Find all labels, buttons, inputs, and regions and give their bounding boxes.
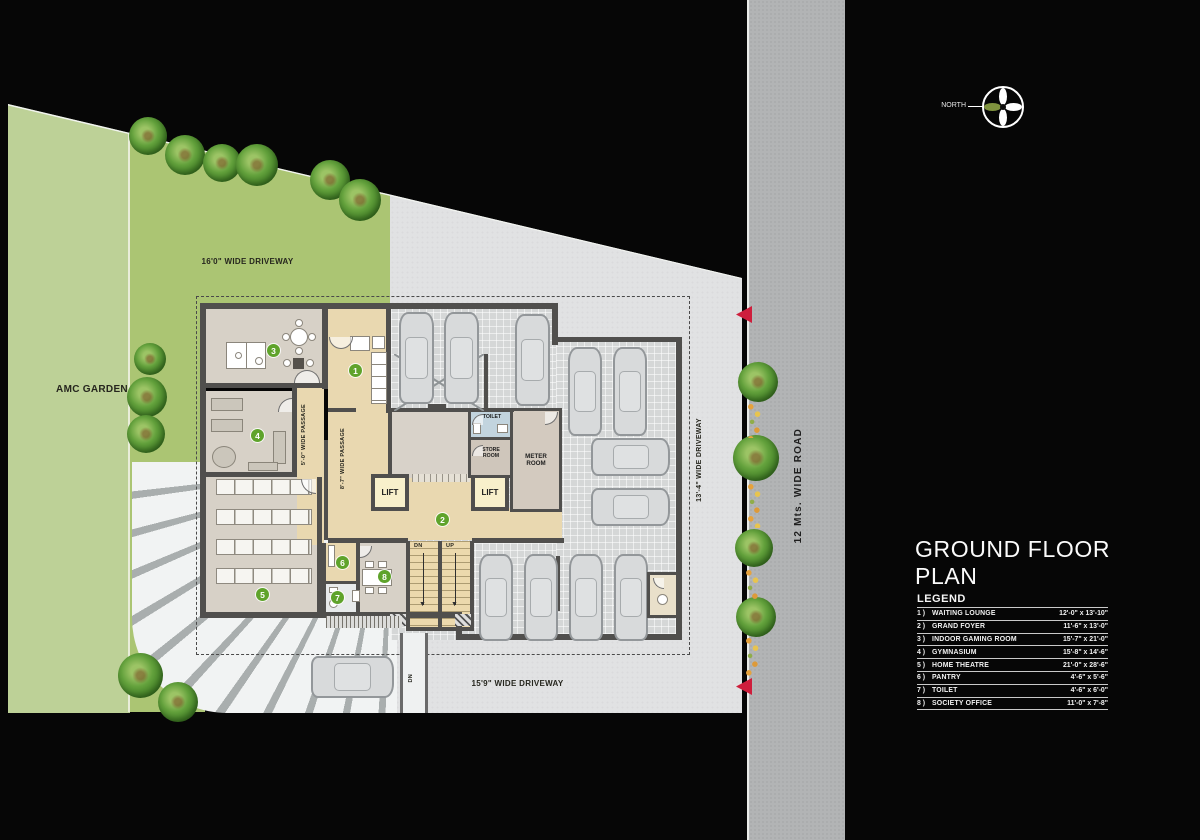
office-desk bbox=[352, 590, 360, 602]
legend-num: 3 ) bbox=[917, 636, 932, 643]
chair bbox=[378, 561, 387, 568]
legend-name: GRAND FOYER bbox=[932, 623, 1063, 630]
car-icon bbox=[515, 314, 550, 406]
road-label: 12 Mts. WIDE ROAD bbox=[793, 428, 804, 543]
wall-gaming-bottom bbox=[200, 383, 328, 388]
weights-row bbox=[248, 462, 278, 471]
billiard-table bbox=[226, 342, 266, 369]
car-icon bbox=[614, 554, 648, 641]
tree-icon bbox=[339, 179, 381, 221]
meter-room-label: METER ROOM bbox=[518, 453, 554, 467]
square-table bbox=[291, 356, 306, 371]
theatre-seat-row bbox=[216, 539, 312, 555]
stair-arrow-left bbox=[423, 553, 424, 605]
car-icon bbox=[569, 554, 603, 641]
wc-icon bbox=[657, 594, 668, 605]
north-label: NORTH bbox=[938, 102, 966, 109]
chair bbox=[283, 359, 291, 367]
wall-xbay-right bbox=[484, 354, 488, 412]
legend-row: 7 ) TOILET 4'-6" x 6'-0" bbox=[917, 685, 1108, 698]
legend-row: 2 ) GRAND FOYER 11'-6" x 13'-0" bbox=[917, 621, 1108, 634]
stair-arrow-left-head: ▼ bbox=[419, 601, 426, 608]
legend-dim: 15'-8" x 14'-6" bbox=[1063, 649, 1108, 656]
compass-petal-n bbox=[999, 88, 1007, 105]
stair-arrow-right-head: ▼ bbox=[451, 601, 458, 608]
exercise-bike bbox=[211, 419, 243, 432]
dumbbell-rack bbox=[273, 431, 286, 464]
badge-8: 8 bbox=[378, 570, 391, 583]
legend-table: 1 ) WAITING LOUNGE 12'-0" x 13'-10" 2 ) … bbox=[917, 607, 1108, 710]
stairs-up-label: UP bbox=[446, 543, 454, 549]
legend-dim: 12'-0" x 13'-10" bbox=[1059, 610, 1108, 617]
car-icon bbox=[613, 347, 647, 436]
parking-toilet bbox=[647, 572, 679, 618]
theatre-seat-row bbox=[216, 479, 312, 495]
legend-num: 1 ) bbox=[917, 610, 932, 617]
toilet-wc bbox=[497, 424, 508, 433]
wall-stairs-left bbox=[406, 541, 410, 631]
legend-num: 2 ) bbox=[917, 623, 932, 630]
wall-gaming-lounge bbox=[322, 303, 328, 389]
car-icon bbox=[568, 347, 602, 436]
chair bbox=[378, 587, 387, 594]
pantry-counter bbox=[328, 545, 335, 567]
chair bbox=[308, 333, 316, 341]
tree-icon bbox=[236, 144, 278, 186]
flowers-icon bbox=[744, 636, 760, 676]
compass-petal-e bbox=[1005, 103, 1022, 111]
car-icon bbox=[399, 312, 434, 404]
passage8-label: 8'-7" WIDE PASSAGE bbox=[340, 428, 346, 489]
badge-4: 4 bbox=[251, 429, 264, 442]
side-table bbox=[372, 336, 385, 349]
flowers-icon bbox=[746, 482, 762, 528]
wall-lounge-bottom bbox=[328, 408, 356, 412]
round-table bbox=[290, 328, 308, 346]
theatre-seat-row bbox=[216, 568, 312, 584]
flowers-icon bbox=[744, 568, 760, 600]
tree-icon bbox=[738, 362, 778, 402]
spin-bike bbox=[212, 446, 236, 468]
badge-3: 3 bbox=[267, 344, 280, 357]
meter-room: METER ROOM bbox=[510, 408, 562, 512]
legend-title: LEGEND bbox=[917, 593, 966, 605]
compass-petal-s bbox=[999, 109, 1007, 126]
floor-plan-sheet: 12 Mts. WIDE ROAD DN UP bbox=[0, 0, 1200, 840]
legend-dim: 11'-6" x 13'-0" bbox=[1063, 623, 1108, 630]
wall-theatre-top bbox=[200, 472, 297, 477]
amc-garden-area bbox=[8, 104, 130, 713]
lift-2-label: LIFT bbox=[482, 488, 499, 497]
wall-gym-right bbox=[292, 383, 297, 477]
pier-hatched-2 bbox=[455, 614, 471, 626]
flowers-icon bbox=[746, 402, 762, 438]
badge-6: 6 bbox=[336, 556, 349, 569]
car-icon bbox=[591, 488, 670, 526]
lift-1: LIFT bbox=[371, 474, 409, 511]
wall-vestibule-left bbox=[388, 408, 392, 478]
legend-dim: 21'-0" x 28'-6" bbox=[1063, 662, 1108, 669]
driveway-top-label: 16'0" WIDE DRIVEWAY bbox=[185, 257, 310, 266]
legend-num: 7 ) bbox=[917, 687, 932, 694]
tree-icon bbox=[158, 682, 198, 722]
wall-passage-foyer bbox=[324, 440, 328, 540]
compass-center bbox=[1000, 104, 1006, 110]
car-icon bbox=[591, 438, 670, 476]
legend-row: 5 ) HOME THEATRE 21'-0" x 28'-6" bbox=[917, 659, 1108, 672]
badge-2: 2 bbox=[436, 513, 449, 526]
wall-top-b bbox=[552, 337, 682, 342]
chair bbox=[295, 319, 303, 327]
sheet-title-line2: PLAN bbox=[915, 563, 1135, 590]
tree-icon bbox=[129, 117, 167, 155]
tree-icon bbox=[733, 435, 779, 481]
armchair bbox=[350, 336, 370, 351]
legend-name: TOILET bbox=[932, 687, 1071, 694]
compass-petal-w bbox=[984, 103, 1001, 111]
legend-num: 6 ) bbox=[917, 674, 932, 681]
tree-icon bbox=[118, 653, 163, 698]
tree-icon bbox=[134, 343, 166, 375]
site-plot: DN UP ▼ ▼ LIFT LIFT TOILET STORE ROOM bbox=[0, 0, 747, 840]
chair bbox=[365, 587, 374, 594]
legend-num: 4 ) bbox=[917, 649, 932, 656]
legend-row: 8 ) SOCIETY OFFICE 11'-0" x 7'-8" bbox=[917, 698, 1108, 711]
driveway-bottom-label: 15'9" WIDE DRIVEWAY bbox=[450, 679, 585, 688]
lift-2: LIFT bbox=[471, 474, 509, 511]
wall-left bbox=[200, 303, 206, 618]
legend-row: 1 ) WAITING LOUNGE 12'-0" x 13'-10" bbox=[917, 608, 1108, 621]
legend-name: PANTRY bbox=[932, 674, 1071, 681]
door-arc bbox=[653, 578, 664, 589]
badge-7: 7 bbox=[331, 591, 344, 604]
chair bbox=[306, 359, 314, 367]
wall-foyer-bottom-l bbox=[328, 538, 408, 543]
driveway-right-label: 13'-4" WIDE DRIVEWAY bbox=[696, 418, 703, 502]
legend-name: WAITING LOUNGE bbox=[932, 610, 1059, 617]
entry-mat bbox=[412, 474, 470, 482]
stairs-dn-label: DN bbox=[414, 543, 423, 549]
tree-icon bbox=[127, 377, 167, 417]
tree-icon bbox=[127, 415, 165, 453]
tree-icon bbox=[165, 135, 205, 175]
toilet-store-divider bbox=[471, 437, 511, 440]
legend-dim: 4'-6" x 6'-0" bbox=[1071, 687, 1108, 694]
legend-dim: 15'-7" x 21'-0" bbox=[1063, 636, 1108, 643]
chair bbox=[295, 347, 303, 355]
wall-foyer-bottom-r bbox=[472, 538, 564, 543]
legend-row: 3 ) INDOOR GAMING ROOM 15'-7" x 21'-0" bbox=[917, 634, 1108, 647]
legend-num: 8 ) bbox=[917, 700, 932, 707]
wall-core-left bbox=[322, 543, 326, 613]
car-icon bbox=[524, 554, 558, 641]
legend-dim: 11'-0" x 7'-8" bbox=[1067, 700, 1108, 707]
sheet-title-line1: GROUND FLOOR bbox=[915, 536, 1135, 563]
legend-num: 5 ) bbox=[917, 662, 932, 669]
treadmill bbox=[211, 398, 243, 411]
sheet-title: GROUND FLOOR PLAN bbox=[915, 536, 1135, 590]
legend-name: INDOOR GAMING ROOM bbox=[932, 636, 1063, 643]
wall-top-a bbox=[200, 303, 558, 309]
north-compass: NORTH bbox=[938, 84, 1028, 130]
theatre-seat-row bbox=[216, 509, 312, 525]
car-icon bbox=[444, 312, 479, 404]
core-vestibule-floor bbox=[391, 410, 473, 478]
badge-1: 1 bbox=[349, 364, 362, 377]
legend-name: HOME THEATRE bbox=[932, 662, 1063, 669]
legend-name: GYMNASIUM bbox=[932, 649, 1063, 656]
sofa bbox=[371, 352, 387, 404]
chair bbox=[282, 333, 290, 341]
stair-arrow-right bbox=[455, 553, 456, 605]
legend-dim: 4'-6" x 5'-6" bbox=[1071, 674, 1108, 681]
tree-icon bbox=[736, 597, 776, 637]
passage5-label: 5'-0" WIDE PASSAGE bbox=[301, 404, 307, 465]
legend-row: 6 ) PANTRY 4'-6" x 5'-6" bbox=[917, 672, 1108, 685]
legend-name: SOCIETY OFFICE bbox=[932, 700, 1067, 707]
basement-ramp bbox=[400, 633, 428, 713]
wall-pantry-bottom bbox=[324, 581, 358, 584]
foyer-floor-band bbox=[391, 508, 562, 540]
wall-stairs-bottom bbox=[406, 627, 474, 631]
car-icon bbox=[479, 554, 513, 641]
badge-5: 5 bbox=[256, 588, 269, 601]
lift-1-label: LIFT bbox=[382, 488, 399, 497]
tree-icon bbox=[735, 529, 773, 567]
chair bbox=[365, 561, 374, 568]
car-icon bbox=[311, 656, 394, 698]
ramp-dn-label: DN bbox=[408, 674, 414, 683]
legend-row: 4 ) GYMNASIUM 15'-8" x 14'-6" bbox=[917, 646, 1108, 659]
entry-hatch-band bbox=[326, 616, 402, 628]
